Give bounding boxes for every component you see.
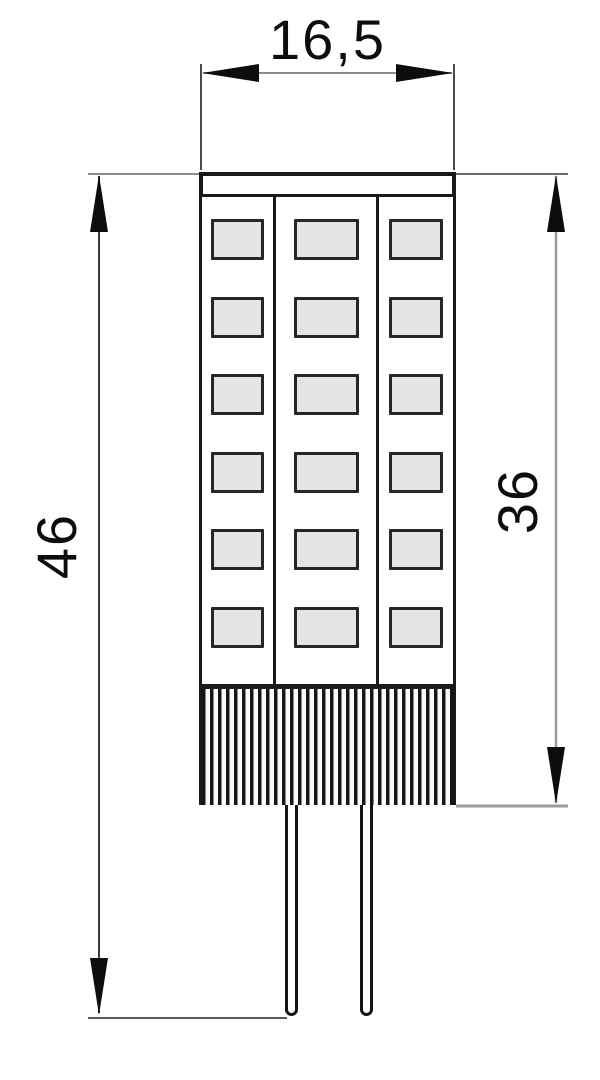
- arrowhead-body-top: [547, 175, 565, 232]
- led-chip: [294, 297, 359, 338]
- bulb-top-cap: [199, 172, 456, 198]
- led-chip: [211, 529, 264, 570]
- led-chip: [211, 297, 264, 338]
- led-chip: [389, 374, 443, 415]
- led-column: [273, 197, 379, 684]
- led-chip: [389, 607, 443, 648]
- led-column: [379, 197, 453, 684]
- pin-right: [360, 805, 373, 1016]
- led-chip: [389, 452, 443, 493]
- led-chip: [211, 607, 264, 648]
- led-column: [202, 197, 273, 684]
- total-height-dimension-label: 46: [29, 476, 85, 616]
- led-chip: [294, 607, 359, 648]
- led-chip: [211, 219, 264, 260]
- led-chip: [294, 529, 359, 570]
- led-chip: [294, 374, 359, 415]
- pin-left: [285, 805, 298, 1016]
- arrowhead-total-bottom: [90, 958, 108, 1015]
- led-chip: [389, 219, 443, 260]
- led-chip: [389, 297, 443, 338]
- heatsink-ribs: [199, 684, 456, 805]
- led-chip: [211, 374, 264, 415]
- arrowhead-total-top: [90, 175, 108, 232]
- led-chip: [294, 452, 359, 493]
- led-chip: [211, 452, 264, 493]
- led-grid: [199, 197, 456, 684]
- width-dimension-label: 16,5: [199, 12, 456, 68]
- dimension-drawing: 16,5 46 36: [0, 0, 600, 1080]
- body-height-dimension-label: 36: [490, 431, 546, 571]
- led-chip: [389, 529, 443, 570]
- arrowhead-body-bottom: [547, 747, 565, 804]
- led-chip: [294, 219, 359, 260]
